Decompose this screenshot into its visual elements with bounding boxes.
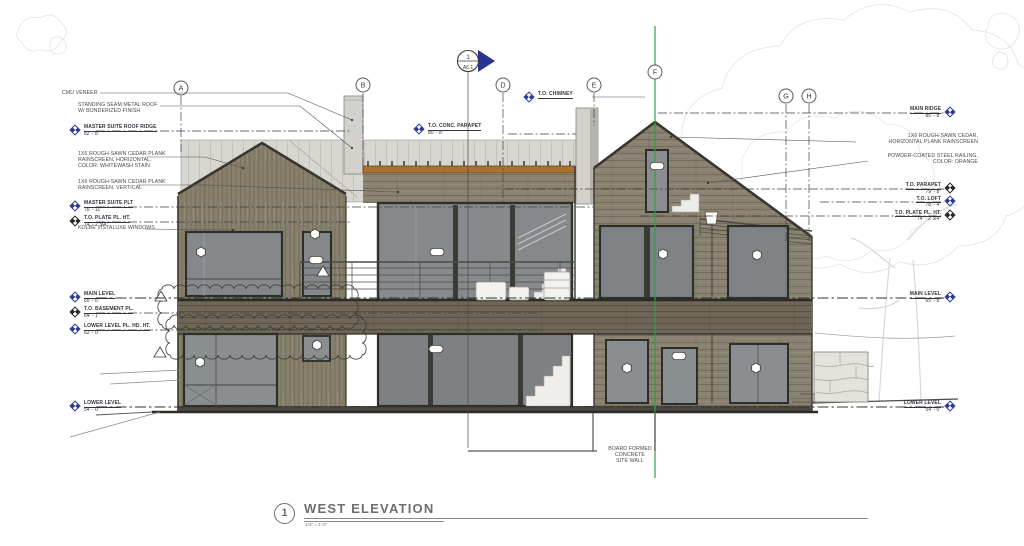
level-marker: T.O. CONC. PARAPET 80' - 8" (428, 124, 481, 137)
lower-left-window (184, 334, 277, 406)
stone-site-wall (814, 352, 868, 402)
right-main-window-2 (728, 226, 788, 298)
title-rule (304, 518, 868, 519)
svg-text:B: B (361, 83, 366, 90)
note-cedar-vertical: 1X6 ROUGH-SAWN CEDAR PLANK RAINSCREEN, V… (78, 179, 166, 191)
note-site-wall: BOARD FORMED CONCRETE SITE WALL (598, 446, 662, 465)
detail-number-bubble: 1 (274, 503, 295, 524)
level-marker: T.O. BASEMENT PL. 64' - 1" (84, 307, 133, 320)
svg-text:F: F (653, 70, 657, 77)
scupper (705, 212, 718, 224)
level-marker: T.O. CHIMNEY (538, 92, 573, 99)
note-cedar-right: 1X6 ROUGH-SAWN CEDAR, HORIZONTAL PLANK R… (889, 133, 978, 145)
level-marker: MAIN RIDGE 85' - 8" (910, 107, 941, 120)
svg-text:H: H (806, 94, 811, 101)
level-marker: LOWER LEVEL 54' - 0" (904, 401, 941, 414)
grid-bubbles: A B D E F G H (174, 65, 816, 103)
center-section (363, 161, 575, 302)
svg-text:A6.1: A6.1 (463, 65, 474, 71)
svg-text:1: 1 (466, 54, 470, 61)
note-metal-roof: STANDING SEAM METAL ROOF W/ BONDERIZED F… (78, 102, 158, 114)
level-marker: T.O. LOFT 78' - 4" (916, 197, 941, 210)
note-cmu-veneer: CMU VENEER (62, 90, 98, 96)
svg-text:G: G (783, 94, 788, 101)
level-marker: MASTER SUITE PLT 76' - 11" (84, 201, 133, 214)
level-marker: T.O. PLATE PL. HT. 74' - 2 3/4" (895, 211, 941, 224)
svg-text:D: D (500, 83, 505, 90)
level-marker: T.O. PARAPET 79' - 8" (906, 183, 941, 196)
lower-right-window-2 (730, 344, 788, 403)
note-steel-railing: POWDER-COATED STEEL RAILING, COLOR: ORAN… (888, 153, 978, 165)
gable-window (646, 150, 668, 212)
deck-fascia-orange (363, 166, 575, 173)
elevation-sheet: A B D E F G H 1 A6.1 (0, 0, 1024, 546)
level-marker: MAIN LEVEL 65' - 6" (910, 292, 941, 305)
note-cedar-horizontal: 1X6 ROUGH-SAWN CEDAR PLANK RAINSCREEN, H… (78, 151, 166, 170)
svg-text:A: A (179, 86, 184, 93)
drawing-scale: 1/4" = 1'-0" (305, 522, 327, 527)
note-kolbe-windows: KOLBE VISTALUXE WINDOWS (78, 225, 155, 231)
level-marker: LOWER LEVEL PL. HD. HT. 62' - 0" (84, 324, 150, 337)
master-window (186, 232, 282, 296)
svg-text:E: E (592, 83, 597, 90)
level-marker: LOWER LEVEL 54' - 0" (84, 401, 121, 414)
level-marker: MAIN LEVEL 65' - 6" (84, 292, 115, 305)
level-marker: MASTER SUITE ROOF RIDGE 82' - 8" (84, 125, 157, 138)
chimney (344, 96, 363, 174)
elevation-drawing: A B D E F G H 1 A6.1 (0, 0, 1024, 546)
drawing-title: WEST ELEVATION (304, 501, 434, 516)
